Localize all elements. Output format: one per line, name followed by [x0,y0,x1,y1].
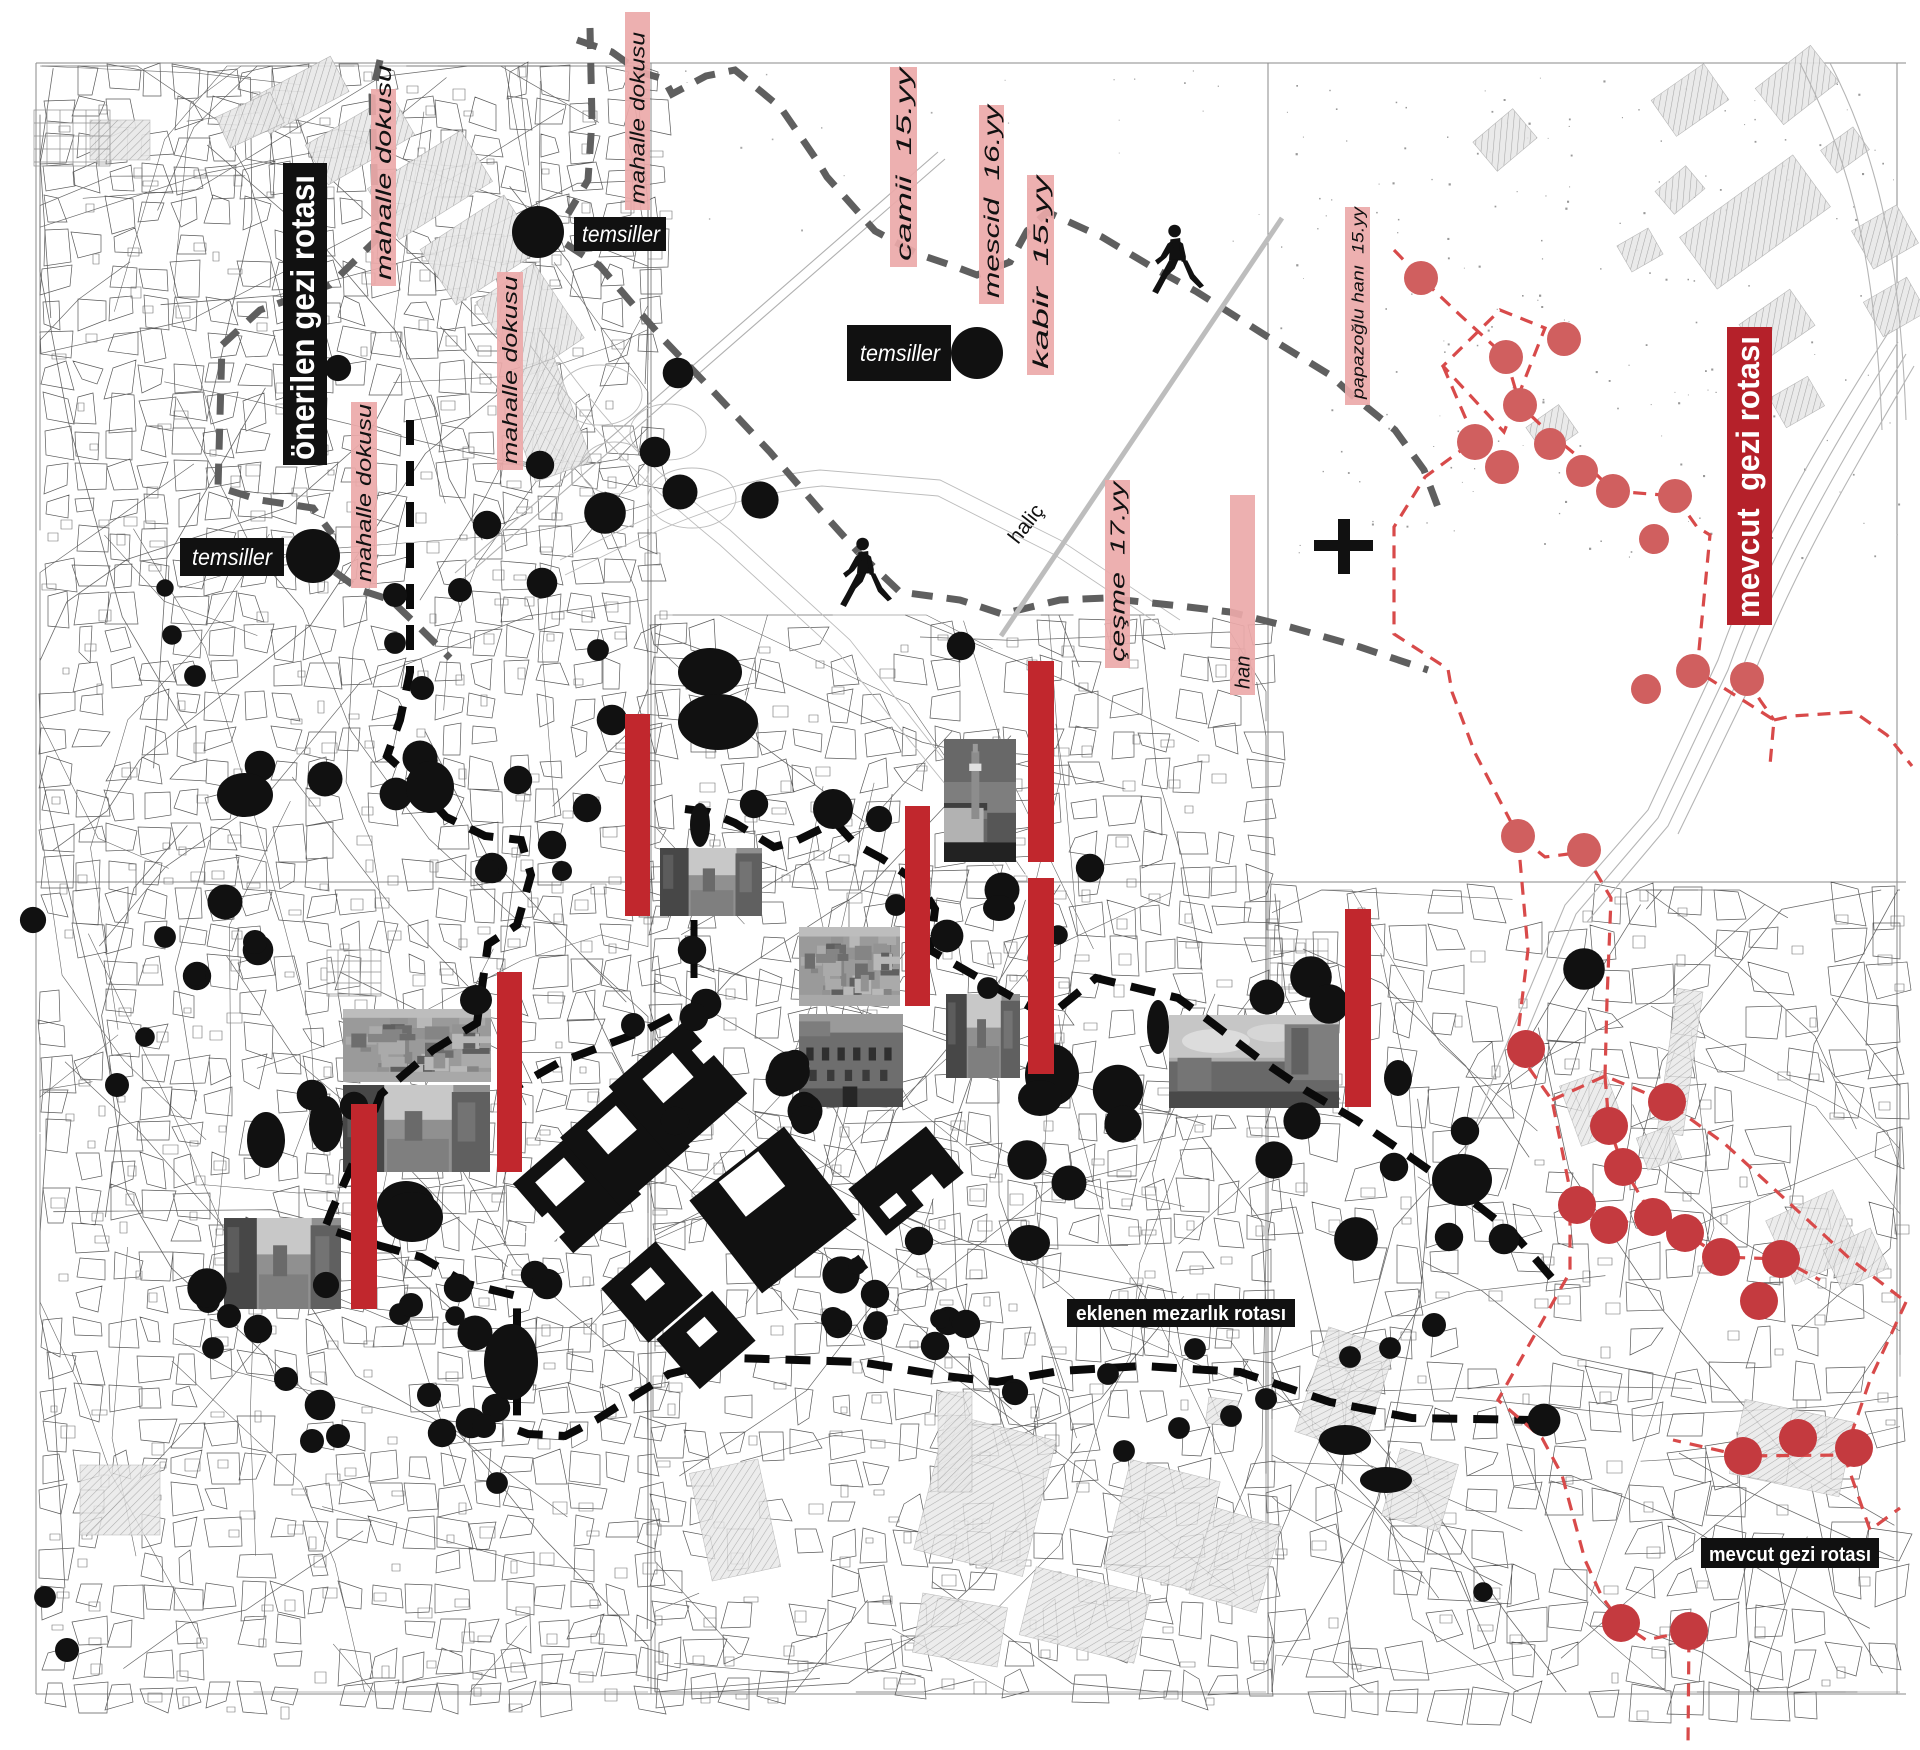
svg-text:mescid 16.yy: mescid 16.yy [981,103,1004,298]
svg-text:papazoğlu hanı 15.yy: papazoğlu hanı 15.yy [1349,205,1368,400]
svg-text:temsiller: temsiller [192,544,273,570]
svg-text:mevcut gezi rotası: mevcut gezi rotası [1709,1544,1871,1566]
svg-text:mahalle dokusu: mahalle dokusu [628,32,650,204]
svg-text:eklenen mezarlık rotası: eklenen mezarlık rotası [1076,1303,1286,1325]
svg-text:temsiller: temsiller [582,221,661,247]
svg-text:mahalle dokusu: mahalle dokusu [373,65,396,280]
svg-text:mevcut gezi rotası: mevcut gezi rotası [1730,336,1766,618]
svg-text:temsiller: temsiller [860,340,941,366]
svg-text:çeşme 17.yy: çeşme 17.yy [1108,480,1130,662]
svg-text:önerilen gezi rotası: önerilen gezi rotası [284,175,321,460]
svg-text:kabir 15.yy: kabir 15.yy [1030,173,1053,369]
svg-text:mahalle dokusu: mahalle dokusu [354,404,376,582]
svg-text:camii 15.yy: camii 15.yy [893,65,916,261]
svg-text:han: han [1233,656,1255,689]
svg-text:mahalle dokusu: mahalle dokusu [500,276,522,464]
